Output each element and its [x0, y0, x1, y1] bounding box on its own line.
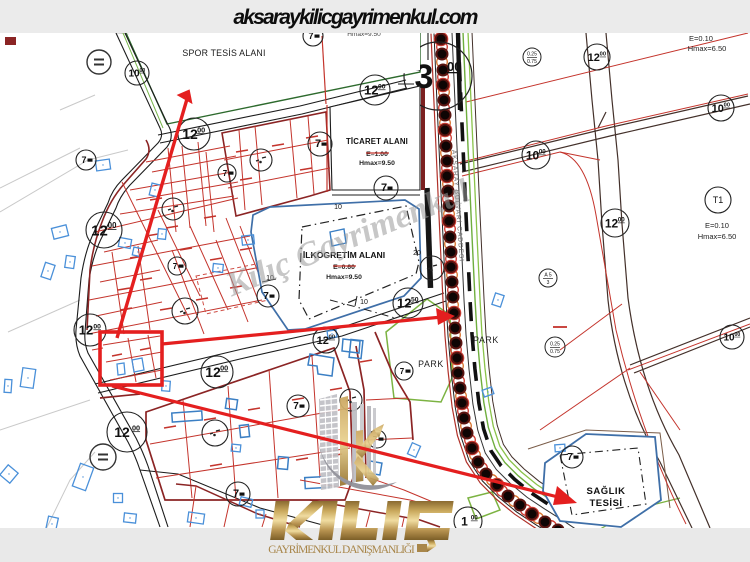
svg-text:7: 7: [223, 169, 228, 178]
svg-text:00: 00: [329, 335, 335, 341]
svg-text:TESİSİ: TESİSİ: [589, 498, 622, 509]
svg-text:12: 12: [317, 335, 329, 347]
svg-text:1: 1: [461, 514, 468, 528]
svg-text:0.25: 0.25: [550, 342, 560, 348]
svg-text:T1: T1: [713, 195, 724, 205]
svg-text:10: 10: [360, 299, 368, 306]
svg-text:00: 00: [108, 221, 117, 230]
svg-text:7: 7: [400, 367, 405, 376]
svg-text:0.75: 0.75: [527, 59, 537, 65]
svg-text:12: 12: [397, 296, 411, 311]
svg-text:00: 00: [132, 423, 140, 432]
svg-text:E=0.60: E=0.60: [333, 264, 355, 271]
svg-text:00: 00: [618, 217, 625, 224]
svg-text:SAĞLIK: SAĞLIK: [587, 485, 626, 497]
svg-text:0.25: 0.25: [527, 52, 537, 58]
svg-text:7: 7: [315, 138, 321, 150]
svg-text:aksaraykilicgayrimenkul.com: aksaraykilicgayrimenkul.com: [233, 6, 477, 29]
svg-text:12: 12: [364, 83, 378, 98]
svg-text:Hmax=6.50: Hmax=6.50: [698, 232, 737, 241]
svg-text:PARK: PARK: [418, 359, 444, 369]
svg-text:12: 12: [605, 216, 619, 230]
svg-text:50: 50: [411, 296, 419, 303]
svg-text:7: 7: [381, 182, 387, 194]
svg-text:10: 10: [723, 333, 735, 344]
svg-text:00: 00: [140, 68, 146, 74]
svg-text:10: 10: [712, 103, 724, 115]
svg-text:00: 00: [471, 515, 478, 522]
svg-text:A 5: A 5: [544, 273, 551, 279]
svg-text:00: 00: [378, 83, 386, 90]
svg-text:E=0.10: E=0.10: [705, 221, 729, 230]
svg-text:7: 7: [263, 291, 269, 302]
svg-text:10: 10: [526, 148, 540, 162]
svg-text:00: 00: [735, 332, 741, 338]
svg-text:00: 00: [724, 103, 730, 109]
svg-text:7: 7: [567, 452, 573, 463]
svg-text:00: 00: [93, 323, 101, 330]
svg-text:Hmax=6.50: Hmax=6.50: [688, 44, 727, 53]
svg-text:TİCARET ALANI: TİCARET ALANI: [346, 137, 408, 146]
svg-text:3: 3: [547, 280, 550, 286]
svg-text:12: 12: [588, 52, 600, 64]
svg-text:10: 10: [128, 69, 140, 80]
svg-text:7: 7: [173, 262, 178, 271]
svg-text:Hmax=9.50: Hmax=9.50: [326, 274, 362, 281]
svg-text:00: 00: [447, 59, 461, 74]
svg-text:7: 7: [293, 401, 299, 412]
svg-text:00: 00: [539, 149, 546, 156]
svg-text:GAYRİMENKUL DANIŞMANLIĞI: GAYRİMENKUL DANIŞMANLIĞI: [268, 542, 415, 556]
svg-text:7: 7: [233, 488, 239, 500]
svg-text:12: 12: [91, 222, 108, 239]
svg-text:7: 7: [81, 155, 86, 165]
svg-text:Hmax=9.50: Hmax=9.50: [359, 160, 395, 167]
svg-text:20: 20: [413, 250, 421, 257]
svg-text:E=0.10: E=0.10: [689, 34, 713, 43]
svg-text:12: 12: [182, 126, 198, 142]
svg-text:10: 10: [334, 204, 342, 211]
svg-text:0.75: 0.75: [550, 349, 560, 355]
svg-text:00: 00: [197, 125, 205, 134]
svg-text:00: 00: [220, 363, 228, 372]
svg-text:E=1.00: E=1.00: [366, 151, 388, 158]
svg-text:12: 12: [79, 323, 93, 338]
svg-text:SPOR TESİS ALANI: SPOR TESİS ALANI: [182, 48, 265, 58]
svg-text:12: 12: [114, 424, 130, 440]
svg-text:00: 00: [600, 52, 606, 58]
svg-text:12: 12: [205, 364, 221, 380]
svg-text:PARK: PARK: [473, 335, 499, 345]
